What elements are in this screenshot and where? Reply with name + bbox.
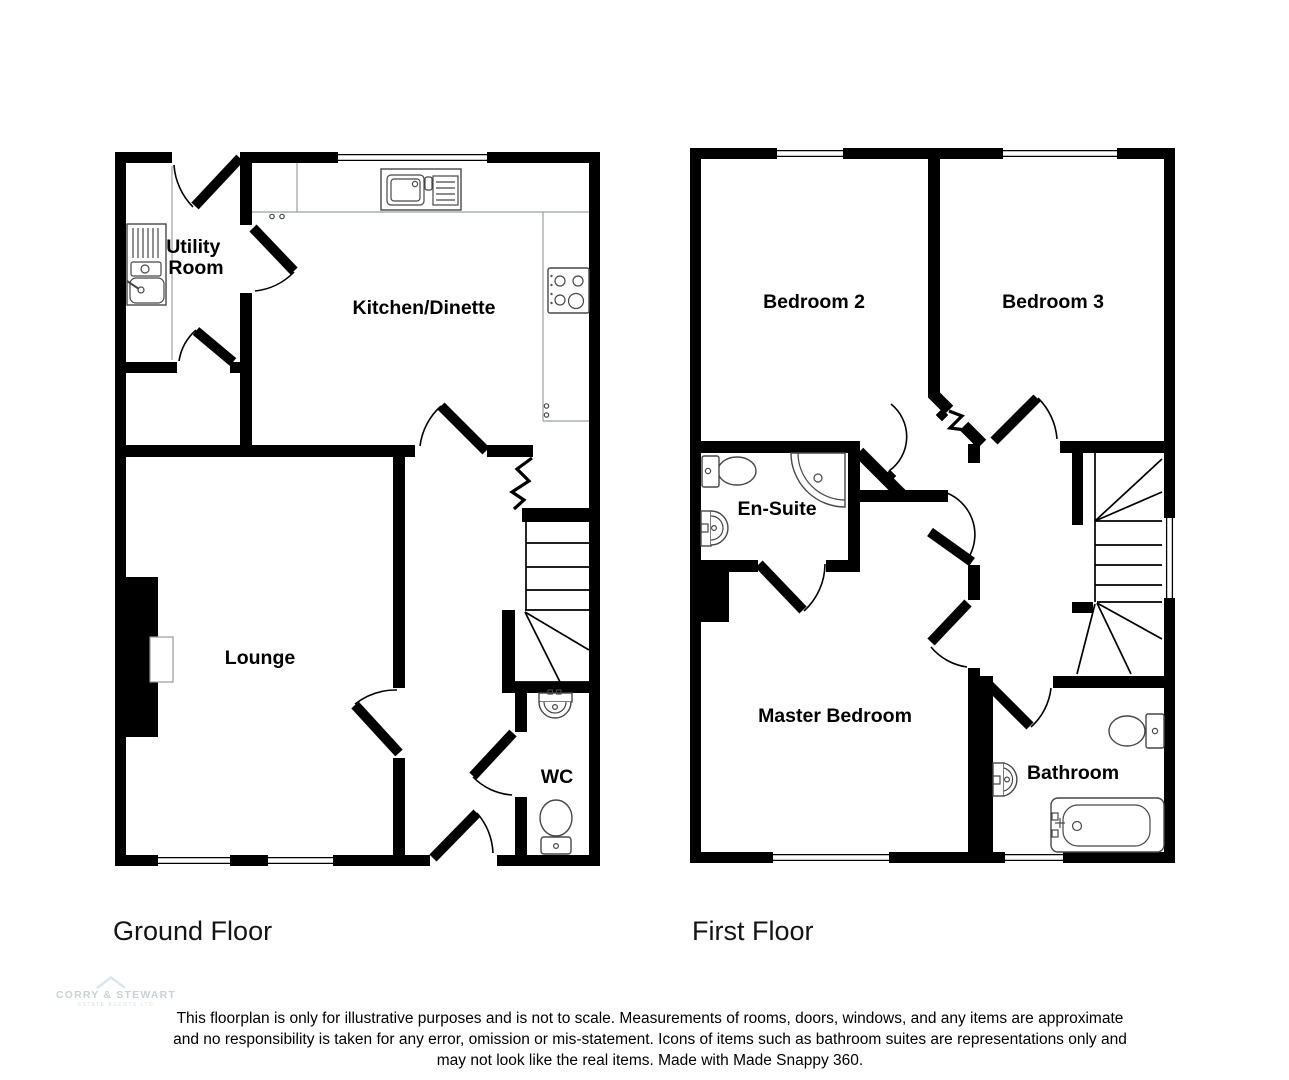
room-label-bedroom3: Bedroom 3 bbox=[1002, 291, 1104, 313]
kitchen-sink-icon bbox=[381, 169, 461, 210]
door-lounge bbox=[355, 690, 399, 753]
room-label-bathroom: Bathroom bbox=[1027, 762, 1119, 784]
window-icon-master-bottom bbox=[773, 852, 889, 863]
window-icon-kitchen-top bbox=[338, 152, 487, 163]
door-utility-kitchen bbox=[253, 228, 294, 291]
room-label-utility: Utility Room bbox=[166, 236, 226, 279]
floor-caption-first: First Floor bbox=[692, 916, 814, 946]
disclaimer-line-3: may not look like the real items. Made w… bbox=[437, 1052, 863, 1069]
floor-caption-ground: Ground Floor bbox=[113, 916, 272, 946]
staircase-ground-icon bbox=[515, 522, 589, 682]
ensuite-toilet-icon bbox=[702, 456, 756, 487]
door-wc bbox=[473, 733, 513, 795]
door-bathroom bbox=[988, 684, 1051, 727]
wc-sink-icon bbox=[539, 690, 572, 718]
window-icon-bedroom2-top bbox=[777, 148, 843, 159]
first-floor-plan: Bedroom 2 Bedroom 3 En-Suite Master Bedr… bbox=[690, 148, 1175, 863]
door-bedroom3 bbox=[994, 398, 1057, 441]
floorplan-drawing: Utility Room Kitchen/Dinette Lounge WC bbox=[0, 0, 1289, 1080]
chimney-breast-icon bbox=[701, 572, 729, 622]
door-bedroom2 bbox=[889, 404, 907, 471]
door-front-entrance bbox=[433, 813, 493, 858]
window-icon-lounge-bottom-left bbox=[158, 855, 230, 866]
door-kitchen-hall bbox=[420, 406, 486, 451]
door-utility-cupboard bbox=[179, 330, 233, 362]
room-label-bedroom2: Bedroom 2 bbox=[763, 291, 865, 313]
kitchen-hob-icon bbox=[548, 268, 589, 313]
stair-break-symbol-ground bbox=[512, 458, 532, 509]
window-icon-bathroom-bottom bbox=[1005, 852, 1063, 863]
window-icon-lounge-bottom-right bbox=[268, 855, 333, 866]
logo-subtext: ESTATE AGENTS LTD bbox=[78, 1002, 154, 1008]
utility-sink-unit-icon bbox=[127, 224, 166, 305]
disclaimer-line-2: and no responsibility is taken for any e… bbox=[173, 1031, 1127, 1048]
wc-toilet-icon bbox=[540, 800, 572, 854]
room-label-master: Master Bedroom bbox=[758, 705, 912, 727]
floorplan-page: Utility Room Kitchen/Dinette Lounge WC bbox=[0, 0, 1289, 1080]
logo-roof-icon bbox=[97, 978, 125, 989]
bathroom-toilet-icon bbox=[1109, 714, 1164, 748]
logo-name: CORRY & STEWART bbox=[56, 989, 176, 1001]
ground-floor-plan: Utility Room Kitchen/Dinette Lounge WC bbox=[115, 152, 600, 866]
stair-break-symbol-first bbox=[949, 411, 965, 430]
bathroom-sink-icon bbox=[993, 763, 1017, 796]
disclaimer-line-1: This floorplan is only for illustrative … bbox=[177, 1010, 1124, 1027]
ensuite-sink-icon bbox=[701, 511, 728, 546]
room-label-ensuite: En-Suite bbox=[737, 498, 816, 520]
fireplace-icon bbox=[115, 577, 173, 737]
bathtub-icon bbox=[1051, 798, 1164, 852]
room-label-wc: WC bbox=[541, 766, 574, 788]
room-label-lounge: Lounge bbox=[225, 647, 296, 669]
door-ensuite bbox=[759, 564, 825, 611]
disclaimer-text: This floorplan is only for illustrative … bbox=[173, 1010, 1127, 1069]
door-master-bedroom bbox=[930, 493, 975, 562]
room-label-kitchen: Kitchen/Dinette bbox=[352, 297, 495, 319]
agency-logo: CORRY & STEWART ESTATE AGENTS LTD bbox=[56, 978, 176, 1009]
window-icon-stairwell-right bbox=[1164, 518, 1175, 598]
door-utility-entrance bbox=[174, 158, 240, 207]
door-master-cupboard bbox=[931, 603, 968, 667]
staircase-first-icon bbox=[1077, 453, 1162, 674]
window-icon-bedroom3-top bbox=[1003, 148, 1117, 159]
